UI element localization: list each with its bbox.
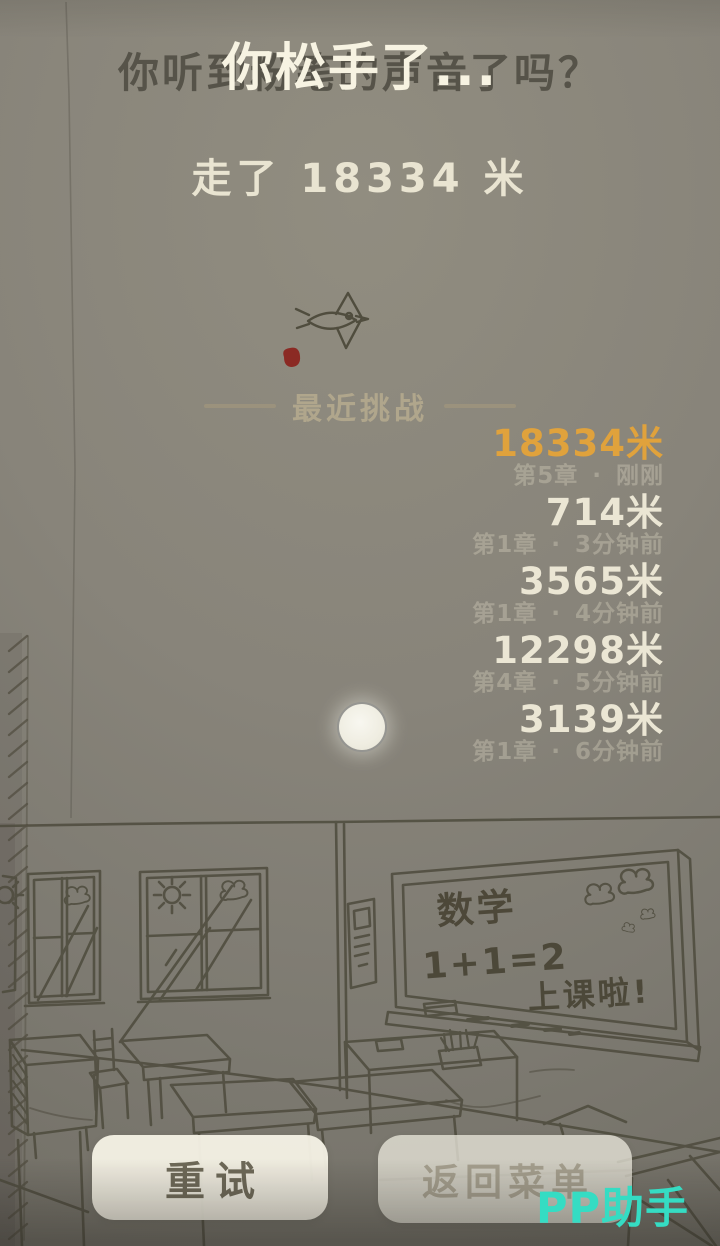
- challenge-entry: 12298米 第4章·5分钟前: [472, 631, 664, 695]
- red-dot: [283, 348, 300, 367]
- challenge-distance: 18334米: [472, 424, 664, 464]
- window-right: [120, 868, 270, 1042]
- challenge-chapter: 第5章: [513, 463, 578, 489]
- challenge-entry: 3565米 第1章·4分钟前: [472, 562, 664, 626]
- pp-assistant-watermark: PP助手: [536, 1174, 689, 1236]
- window-left: [25, 871, 104, 1006]
- challenge-meta: 第1章·4分钟前: [472, 602, 664, 626]
- challenge-chapter: 第1章: [472, 601, 537, 627]
- blackboard-note: 上课啦!: [527, 972, 651, 1016]
- heading-dash-right: [444, 404, 516, 408]
- challenge-time: 刚刚: [616, 463, 664, 489]
- game-over-screen: 数学 1+1=2 上课啦! 你听到粉笔的声音了吗？ 你松手了... 走了 183…: [0, 0, 720, 1246]
- teacher-podium: [345, 1030, 517, 1133]
- challenge-separator: ·: [551, 532, 561, 558]
- blackboard-subject: 数学: [435, 885, 518, 933]
- challenge-meta: 第4章·5分钟前: [472, 671, 664, 695]
- challenge-entry: 18334米 第5章·刚刚: [472, 424, 664, 488]
- challenge-meta: 第1章·3分钟前: [472, 533, 664, 557]
- chalk-cloud-icon: [585, 884, 614, 905]
- challenge-distance: 12298米: [472, 631, 664, 671]
- challenge-separator: ·: [551, 601, 561, 627]
- heading-label: 最近挑战: [292, 384, 428, 428]
- challenge-chapter: 第4章: [472, 670, 537, 696]
- challenge-distance: 3139米: [472, 700, 664, 740]
- challenge-time: 5分钟前: [575, 670, 664, 696]
- challenge-list: 18334米 第5章·刚刚 714米 第1章·3分钟前 3565米 第1章·4分…: [472, 424, 664, 769]
- challenge-chapter: 第1章: [472, 532, 537, 558]
- page-title: 你松手了...: [0, 26, 720, 100]
- retry-button[interactable]: 重试: [92, 1135, 328, 1220]
- challenge-time: 4分钟前: [575, 601, 664, 627]
- bird-doodle-icon: [296, 293, 368, 348]
- challenge-separator: ·: [592, 463, 602, 489]
- challenge-separator: ·: [551, 670, 561, 696]
- challenge-entry: 3139米 第1章·6分钟前: [472, 700, 664, 764]
- challenge-distance: 3565米: [472, 562, 664, 602]
- challenge-distance: 714米: [472, 493, 664, 533]
- blackboard-writing: 数学 1+1=2 上课啦!: [421, 885, 651, 1017]
- ceiling-line: [0, 817, 720, 826]
- floor-cracks: [30, 1069, 574, 1120]
- heading-dash-left: [204, 404, 276, 408]
- challenge-time: 3分钟前: [575, 532, 664, 558]
- chalk-cloud-icon: [619, 869, 653, 893]
- challenge-entry: 714米 第1章·3分钟前: [472, 493, 664, 557]
- player-ball: [339, 704, 385, 750]
- challenge-meta: 第1章·6分钟前: [472, 740, 664, 764]
- wall-poster: [348, 899, 376, 988]
- challenge-separator: ·: [551, 739, 561, 765]
- distance-result: 走了 18334 米: [0, 146, 720, 204]
- challenge-meta: 第5章·刚刚: [472, 464, 664, 488]
- sun-icon: [164, 887, 180, 903]
- challenge-chapter: 第1章: [472, 739, 537, 765]
- challenge-time: 6分钟前: [575, 739, 664, 765]
